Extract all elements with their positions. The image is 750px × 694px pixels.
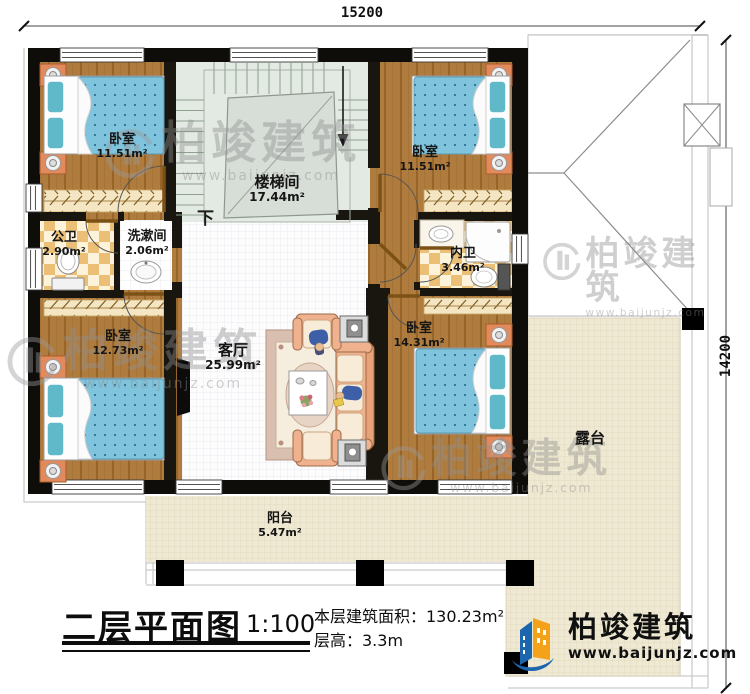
room-label-balcony: 阳台 5.47m² <box>258 512 301 539</box>
roof-side-box <box>710 148 732 206</box>
room-label-bedroom-tr: 卧室 11.51m² <box>399 146 450 173</box>
dimension-right-label: 14200 <box>718 335 734 377</box>
logo-building-icon <box>508 612 562 674</box>
window-left-2 <box>26 248 42 290</box>
floor-height-text: 层高：3.3m <box>314 627 403 651</box>
room-label-bedroom-bl: 卧室 12.73m² <box>92 330 143 357</box>
window-top-1 <box>60 48 144 62</box>
logo-url-text: www.baijunjz.com <box>568 644 737 662</box>
roof-plan <box>528 35 732 316</box>
drawing-scale: 1:100 <box>246 610 315 638</box>
room-label-living-room: 客厅 25.99m² <box>205 342 261 372</box>
coffee-table <box>289 371 327 415</box>
logo-brand-text: 柏竣建筑 <box>568 612 737 644</box>
window-left-1 <box>26 184 42 212</box>
window-bottom-2 <box>330 480 388 494</box>
chimney <box>684 104 720 146</box>
floor-plan-page: 15200 14200 卧室 11.51m² 楼梯间 17.44m² 卧室 11… <box>0 0 750 694</box>
balcony-floor <box>146 496 528 562</box>
tv <box>177 358 190 416</box>
window-top-2 <box>230 48 318 62</box>
window-top-3 <box>412 48 488 62</box>
room-label-public-bath: 公卫 2.90m² <box>42 231 85 258</box>
room-label-terrace: 露台 <box>575 430 605 447</box>
building-area-text: 本层建筑面积：130.23m² <box>314 603 504 627</box>
washroom-sink <box>131 261 161 283</box>
room-label-bedroom-br: 卧室 14.31m² <box>393 322 444 349</box>
dimension-top-label: 15200 <box>341 5 383 21</box>
window-right-1 <box>512 234 528 264</box>
window-bottom-3 <box>438 480 512 494</box>
stairs-down-label: 下 <box>197 204 214 229</box>
room-label-washroom: 洗漱间 2.06m² <box>125 230 168 257</box>
balcony-door <box>176 480 222 494</box>
title-underline-thick <box>62 641 310 645</box>
room-label-ensuite-bath: 内卫 3.46m² <box>441 247 484 274</box>
company-logo: 柏竣建筑 www.baijunjz.com <box>508 612 737 674</box>
room-label-bedroom-tl: 卧室 11.51m² <box>96 133 147 160</box>
room-label-stairwell: 楼梯间 17.44m² <box>249 174 305 204</box>
title-underline-thin <box>62 650 310 652</box>
